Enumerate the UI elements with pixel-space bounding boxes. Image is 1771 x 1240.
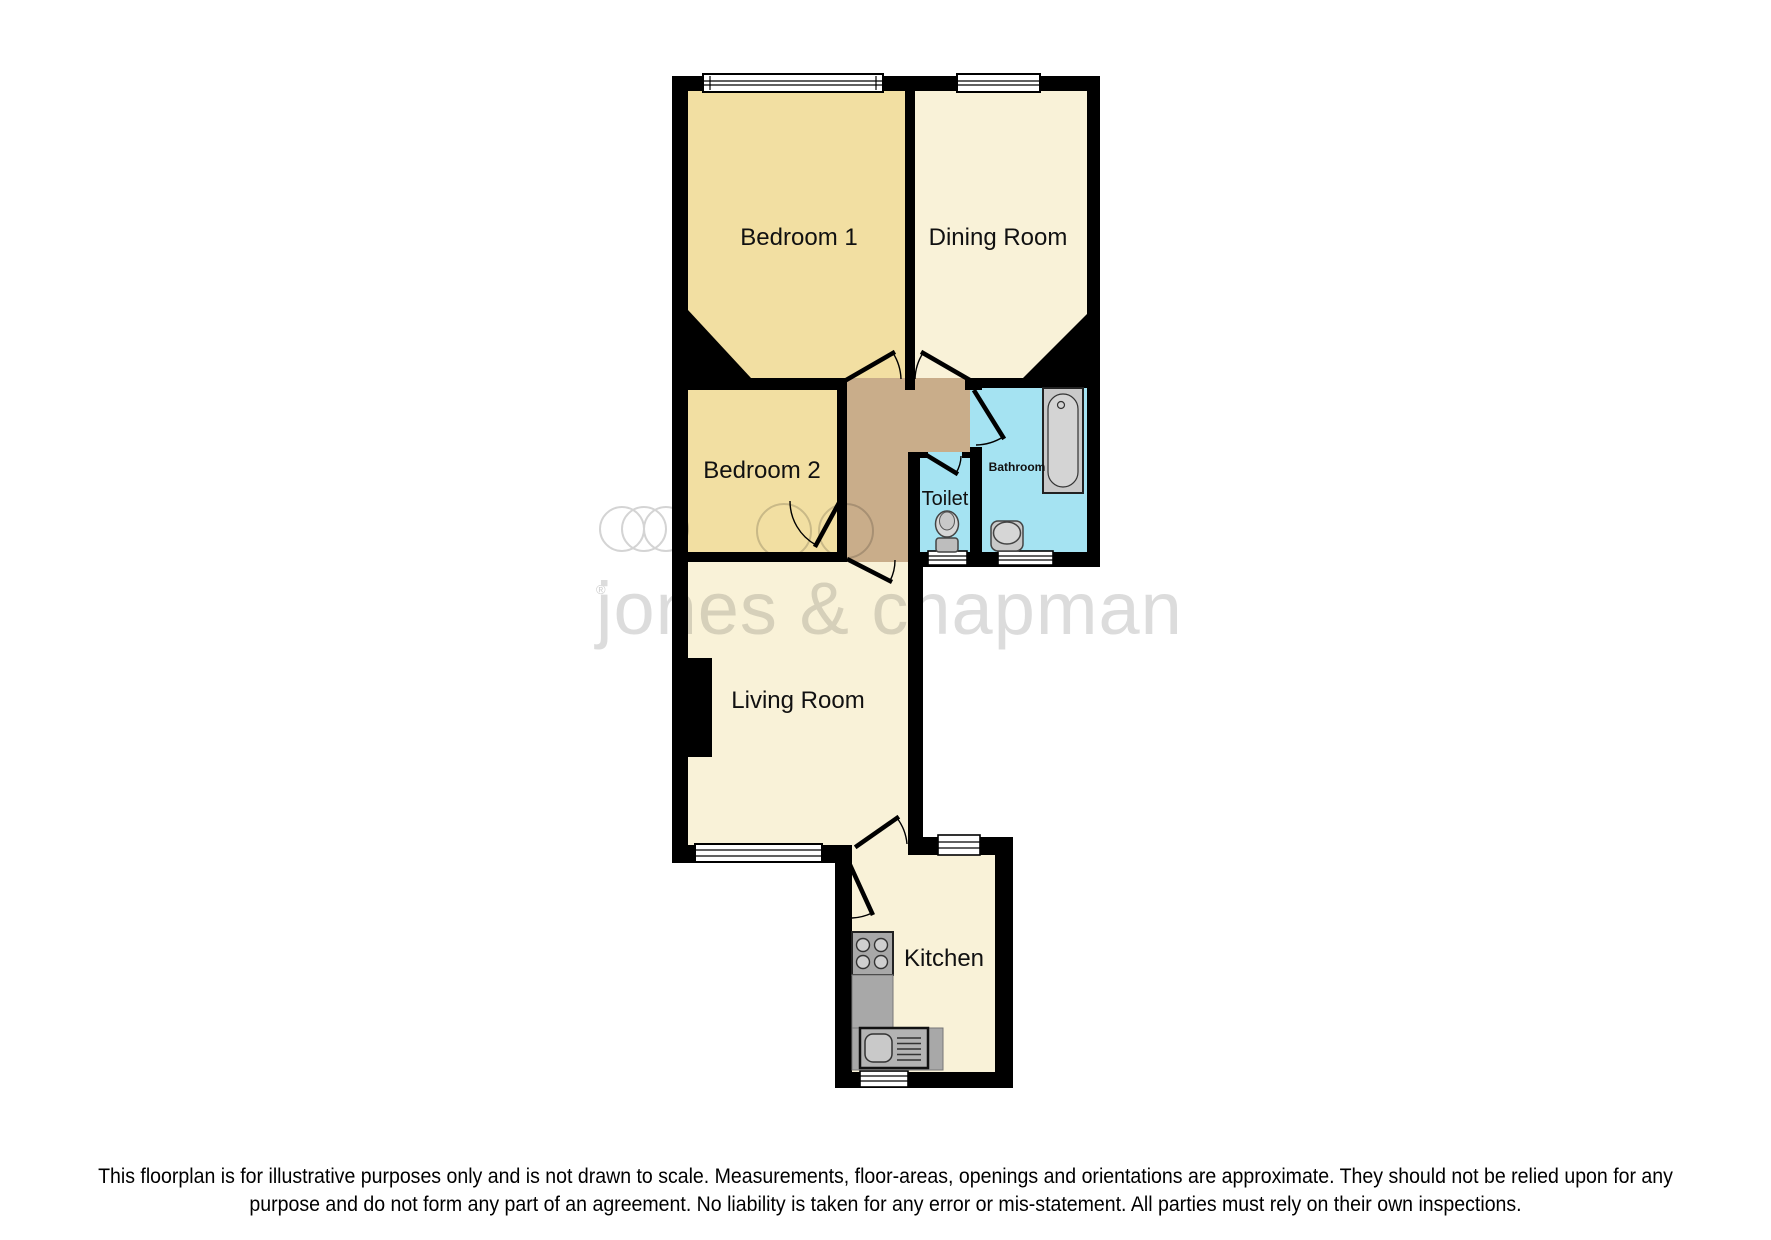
disclaimer-line-2: purpose and do not form any part of an a… (62, 1191, 1709, 1219)
dining-label: Dining Room (929, 224, 1068, 251)
toilet-window (928, 551, 967, 565)
floorplan-svg: Bedroom 1 Dining Room Bedroom 2 Toilet B… (0, 0, 1771, 1240)
stove (852, 932, 893, 975)
bathroom-label: Bathroom (989, 460, 1046, 474)
dining-window (957, 74, 1040, 92)
disclaimer-line-1: This floorplan is for illustrative purpo… (62, 1163, 1709, 1191)
toilet-fixture (936, 511, 959, 552)
toilet-label: Toilet (922, 488, 969, 510)
disclaimer: This floorplan is for illustrative purpo… (0, 1163, 1771, 1219)
chimney-breast (672, 658, 712, 757)
kitchen-label: Kitchen (904, 945, 984, 972)
kitchen-top-window (938, 835, 980, 855)
bedroom2-label: Bedroom 2 (703, 457, 820, 484)
kitchen-bottom-window (860, 1071, 908, 1087)
bedroom1-window (703, 74, 883, 92)
bedroom1-label: Bedroom 1 (740, 224, 857, 251)
watermark-brand-text: jones & chapman (594, 567, 1183, 650)
bathroom-window (998, 551, 1053, 565)
bathroom-sink (991, 521, 1023, 551)
kitchen-sink-unit (860, 1028, 928, 1068)
bathtub (1043, 388, 1083, 493)
living-label: Living Room (731, 687, 864, 714)
living-window (695, 844, 822, 862)
